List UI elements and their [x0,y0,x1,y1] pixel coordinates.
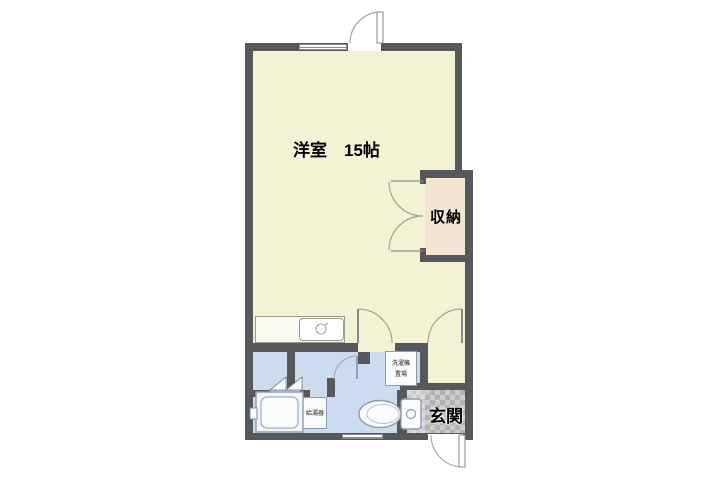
door-washroom-inner [334,356,357,379]
toilet [359,399,421,429]
fixtures-layer [0,0,720,492]
bathtub [250,392,303,432]
door-hallway [428,309,462,343]
floorplan: 洗濯機 置場 給湯器 [0,0,720,492]
door-washroom [358,309,392,343]
closet-double-door [389,181,423,251]
door-entrance [431,435,465,467]
label-entrance: 玄関 [429,402,463,427]
sink-drain-icon [316,323,328,334]
label-closet: 収納 [430,206,462,227]
door-top [350,12,383,43]
bathroom-fold-door [270,377,302,390]
label-living-room: 洋室 15帖 [293,136,380,161]
